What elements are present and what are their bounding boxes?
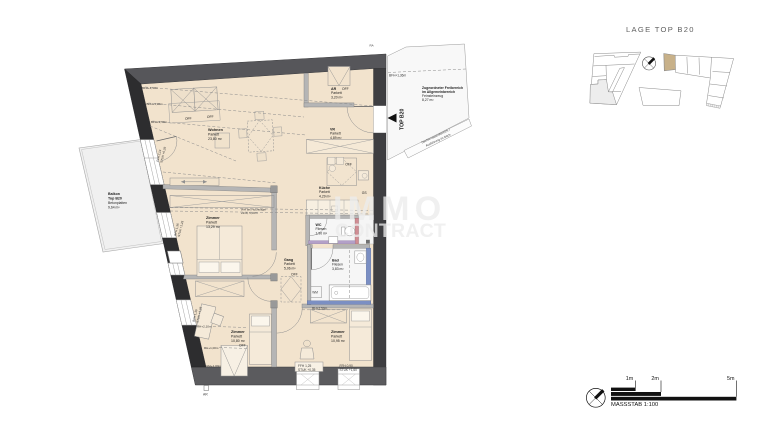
svg-text:Parkett: Parkett: [208, 132, 219, 136]
svg-text:BFH+1,30m: BFH+1,30m: [142, 86, 159, 90]
svg-text:Zimmer: Zimmer: [206, 216, 220, 220]
svg-text:OFF: OFF: [291, 273, 298, 277]
svg-text:OFF: OFF: [239, 343, 246, 347]
svg-text:4,89 m²: 4,89 m²: [330, 136, 342, 140]
svg-text:23,80 m²: 23,80 m²: [208, 137, 223, 141]
svg-text:Parkett: Parkett: [231, 334, 242, 338]
svg-text:RH+2,10m: RH+2,10m: [197, 324, 212, 328]
svg-text:5m: 5m: [727, 376, 735, 382]
svg-text:Betonplatten: Betonplatten: [108, 201, 127, 205]
svg-text:LAGE TOP B20: LAGE TOP B20: [626, 25, 695, 34]
svg-text:5,06 m²: 5,06 m²: [284, 266, 296, 270]
svg-text:OFF: OFF: [345, 163, 352, 167]
svg-text:BFH+1,90m: BFH+1,90m: [147, 102, 164, 106]
svg-text:STUK +0,35: STUK +0,35: [298, 368, 316, 372]
svg-text:Zimmer: Zimmer: [331, 330, 345, 334]
svg-text:OFF: OFF: [185, 116, 192, 120]
svg-text:Parkett: Parkett: [206, 220, 217, 224]
svg-text:Top B20: Top B20: [108, 197, 122, 201]
svg-text:4,29 m²: 4,29 m²: [319, 194, 331, 198]
svg-text:2m: 2m: [651, 376, 659, 382]
svg-text:TOP B20: TOP B20: [400, 108, 406, 130]
svg-text:3,83 m²: 3,83 m²: [332, 267, 344, 271]
svg-text:1m: 1m: [626, 376, 634, 382]
svg-text:OFF: OFF: [342, 87, 349, 91]
svg-text:Parkett: Parkett: [331, 334, 342, 338]
svg-text:10,95 m²: 10,95 m²: [331, 339, 346, 343]
svg-text:Zimmer: Zimmer: [231, 330, 245, 334]
svg-text:22x8, 5,00m: 22x8, 5,00m: [241, 211, 258, 215]
svg-text:13,29 m²: 13,29 m²: [206, 225, 221, 229]
svg-text:9,64 m²: 9,64 m²: [108, 206, 120, 210]
svg-text:MASSSTAB 1:100: MASSSTAB 1:100: [611, 402, 658, 408]
svg-text:10,80 m²: 10,80 m²: [231, 339, 246, 343]
svg-text:RA: RA: [370, 44, 374, 48]
svg-text:WM: WM: [312, 291, 318, 295]
svg-text:Balkon: Balkon: [108, 192, 120, 196]
svg-text:BFH+1,36m: BFH+1,36m: [389, 74, 406, 78]
svg-text:Wohnen: Wohnen: [208, 128, 224, 132]
svg-text:STUK +1,60: STUK +1,60: [340, 368, 358, 372]
svg-text:3,20 m²: 3,20 m²: [331, 95, 343, 99]
svg-text:RH+1,00m: RH+1,00m: [204, 346, 219, 350]
svg-text:8,27 m²: 8,27 m²: [422, 98, 434, 102]
svg-text:CONTRACT: CONTRACT: [335, 220, 446, 242]
svg-text:BFH+2,50m: BFH+2,50m: [151, 120, 168, 124]
svg-text:OFF: OFF: [207, 115, 214, 119]
svg-text:RH+1,00m: RH+1,00m: [207, 364, 222, 368]
svg-text:1,90 m²: 1,90 m²: [316, 231, 328, 235]
svg-text:AR: AR: [203, 393, 208, 397]
